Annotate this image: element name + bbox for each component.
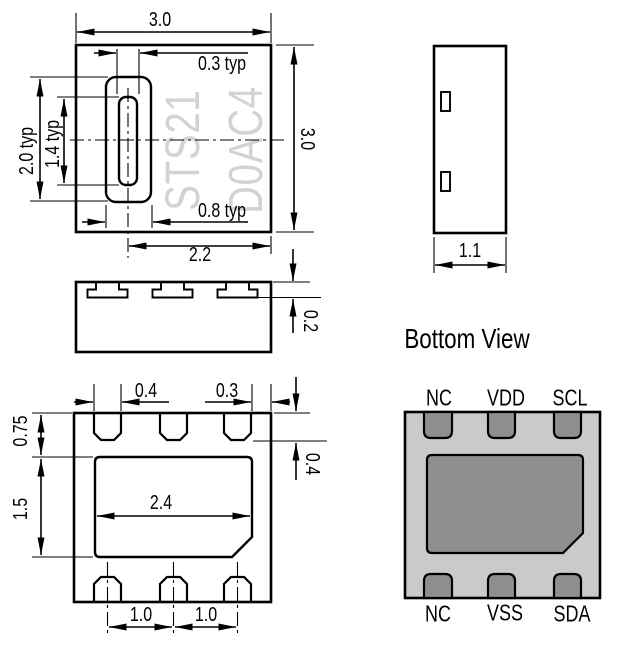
- package-drawing: STS21 D0AC4: [0, 0, 622, 649]
- dim-label-pitch-left: 1.0: [130, 605, 152, 625]
- side-view: [434, 46, 506, 273]
- pinout-title: Bottom View: [404, 325, 529, 353]
- front-view-extension-lines: [257, 282, 321, 298]
- pin-label-vdd: VDD: [487, 387, 525, 410]
- dim-label-diepad-height: 1.5: [11, 498, 31, 520]
- dim-label-slot-width: 0.3 typ: [198, 54, 246, 74]
- dim-label-slot-outer-width: 0.8 typ: [198, 201, 246, 221]
- pad-sda: [554, 574, 581, 598]
- dim-label-top-height: 3.0: [297, 128, 317, 150]
- pin-label-vss: VSS: [487, 602, 523, 625]
- dim-label-pad-length: 0.4: [302, 453, 322, 475]
- pad-vss: [488, 574, 515, 598]
- pad-vdd: [488, 412, 515, 438]
- dim-label-depth: 1.1: [459, 241, 481, 261]
- pin-label-nc-bottom: NC: [425, 603, 451, 626]
- bottom-dim-view-centerlines: [108, 562, 238, 635]
- top-view: [30, 13, 314, 258]
- dim-label-edge-gap: 0.3: [216, 381, 238, 401]
- top-view-dimension-lines: [40, 32, 294, 246]
- pin-label-sda: SDA: [554, 603, 591, 626]
- dim-label-row-offset: 0.75: [11, 415, 31, 446]
- dim-label-top-width: 3.0: [149, 10, 171, 30]
- dim-label-diepad-width: 2.4: [150, 493, 172, 513]
- dim-label-pad-width: 0.4: [135, 381, 157, 401]
- bottom-dim-view: [32, 377, 327, 635]
- pinout-die-pad: [427, 455, 583, 553]
- dim-label-slot-outer-height: 2.0 typ: [17, 127, 37, 175]
- bottom-dim-view-extension-lines: [32, 384, 327, 557]
- bottom-dim-view-die-pad: [95, 457, 252, 557]
- pin-label-scl: SCL: [553, 387, 588, 410]
- front-view-pad-slots: [88, 283, 258, 298]
- dim-label-slot-inner-height: 1.4 typ: [43, 120, 63, 168]
- pinout-view: [405, 412, 600, 598]
- pad-nc-bottom: [424, 574, 452, 598]
- bottom-dim-view-pads: [94, 413, 251, 602]
- pin-label-nc-top: NC: [426, 387, 452, 410]
- pad-nc-top: [424, 412, 452, 438]
- dim-label-center-to-edge: 2.2: [189, 245, 211, 265]
- dim-label-pitch-right: 1.0: [195, 605, 217, 625]
- dim-label-pad-thickness: 0.2: [300, 310, 320, 332]
- pad-scl: [554, 412, 581, 438]
